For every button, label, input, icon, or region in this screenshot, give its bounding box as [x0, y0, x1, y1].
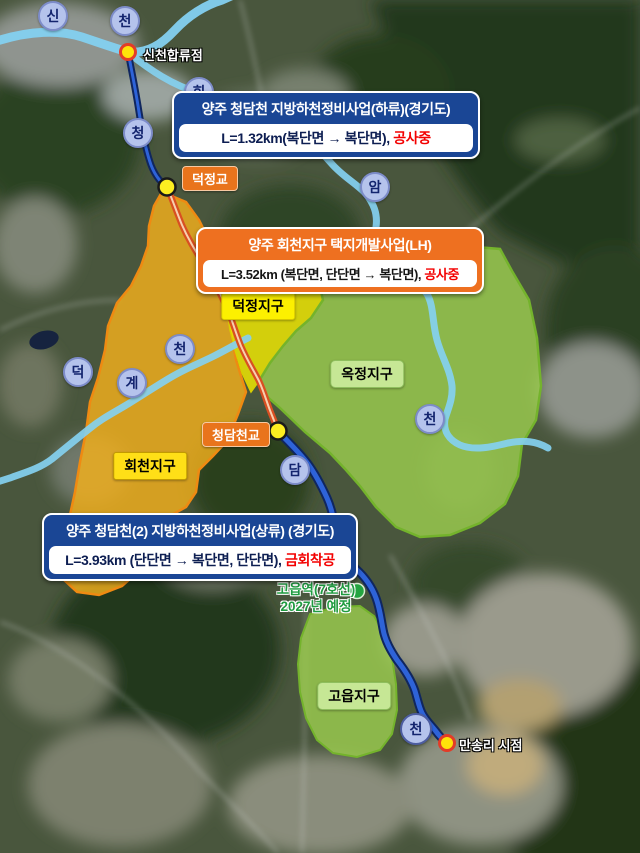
stream-badge-cheon-2: 천: [165, 334, 195, 364]
stream-badge-deok: 덕: [63, 357, 93, 387]
project-card-hoecheon-lh: 양주 회천지구 택지개발사업(LH) L=3.52km (복단면, 단단면 → …: [196, 227, 484, 294]
stream-badge-dam: 담: [280, 455, 310, 485]
stream-badge-cheon-4: 천: [400, 713, 432, 745]
project-card-cheongdam-downstream: 양주 청담천 지방하천정비사업(하류)(경기도) L=1.32km(복단면 → …: [172, 91, 480, 159]
project-length-lh: L=3.52km (복단면, 단단면 → 복단면),: [221, 267, 424, 282]
project-title-downstream: 양주 청담천 지방하천정비사업(하류)(경기도): [179, 96, 473, 124]
district-label-goeup: 고읍지구: [317, 682, 391, 710]
cheongdamcheon-bridge-marker: [270, 423, 287, 440]
stream-badge-sin: 신: [38, 1, 68, 31]
deokjeong-bridge-marker: [159, 179, 176, 196]
project-length-upstream: L=3.93km (단단면 → 복단면, 단단면),: [65, 552, 285, 568]
mansongri-label: 만송리 시점: [459, 735, 522, 754]
project-card-cheongdam-upstream: 양주 청담천(2) 지방하천정비사업(상류) (경기도) L=3.93km (단…: [42, 513, 358, 581]
goeup-station-label: 고읍역(7호선) 2027년 예정: [252, 582, 380, 616]
stream-badge-cheon-1: 천: [110, 6, 140, 36]
confluence-marker: [121, 45, 136, 60]
goeup-station-line2: 2027년 예정: [252, 599, 380, 616]
mansongri-marker: [440, 736, 455, 751]
project-status-downstream: 공사중: [393, 130, 430, 146]
district-label-hoecheon: 회천지구: [113, 452, 187, 480]
project-length-downstream: L=1.32km(복단면 → 복단면),: [221, 130, 393, 146]
bridge-label-cheongdamcheongyo: 청담천교: [202, 422, 270, 447]
stream-badge-cheong: 청: [123, 118, 153, 148]
project-detail-upstream: L=3.93km (단단면 → 복단면, 단단면), 금회착공: [49, 546, 351, 574]
project-detail-downstream: L=1.32km(복단면 → 복단면), 공사중: [179, 124, 473, 152]
stream-badge-cheon-3: 천: [415, 404, 445, 434]
project-status-upstream: 금회착공: [285, 552, 335, 568]
project-title-lh: 양주 회천지구 택지개발사업(LH): [203, 232, 477, 260]
goeup-station-line1: 고읍역(7호선): [252, 582, 380, 599]
district-label-okjeong: 옥정지구: [330, 360, 404, 388]
project-title-upstream: 양주 청담천(2) 지방하천정비사업(상류) (경기도): [49, 518, 351, 546]
bridge-label-deokjeonggyo: 덕정교: [182, 166, 238, 191]
project-detail-lh: L=3.52km (복단면, 단단면 → 복단면), 공사중: [203, 260, 477, 287]
project-status-lh: 공사중: [424, 267, 459, 282]
stream-badge-gye: 계: [117, 368, 147, 398]
confluence-label: 신천합류점: [143, 45, 203, 64]
satellite-map: 신 천 회 청 암 천 덕 계 천 담 천 덕정지구 옥정지구 회천지구 고읍지…: [0, 0, 640, 853]
stream-badge-am: 암: [360, 172, 390, 202]
district-label-deokjeong: 덕정지구: [221, 292, 295, 320]
